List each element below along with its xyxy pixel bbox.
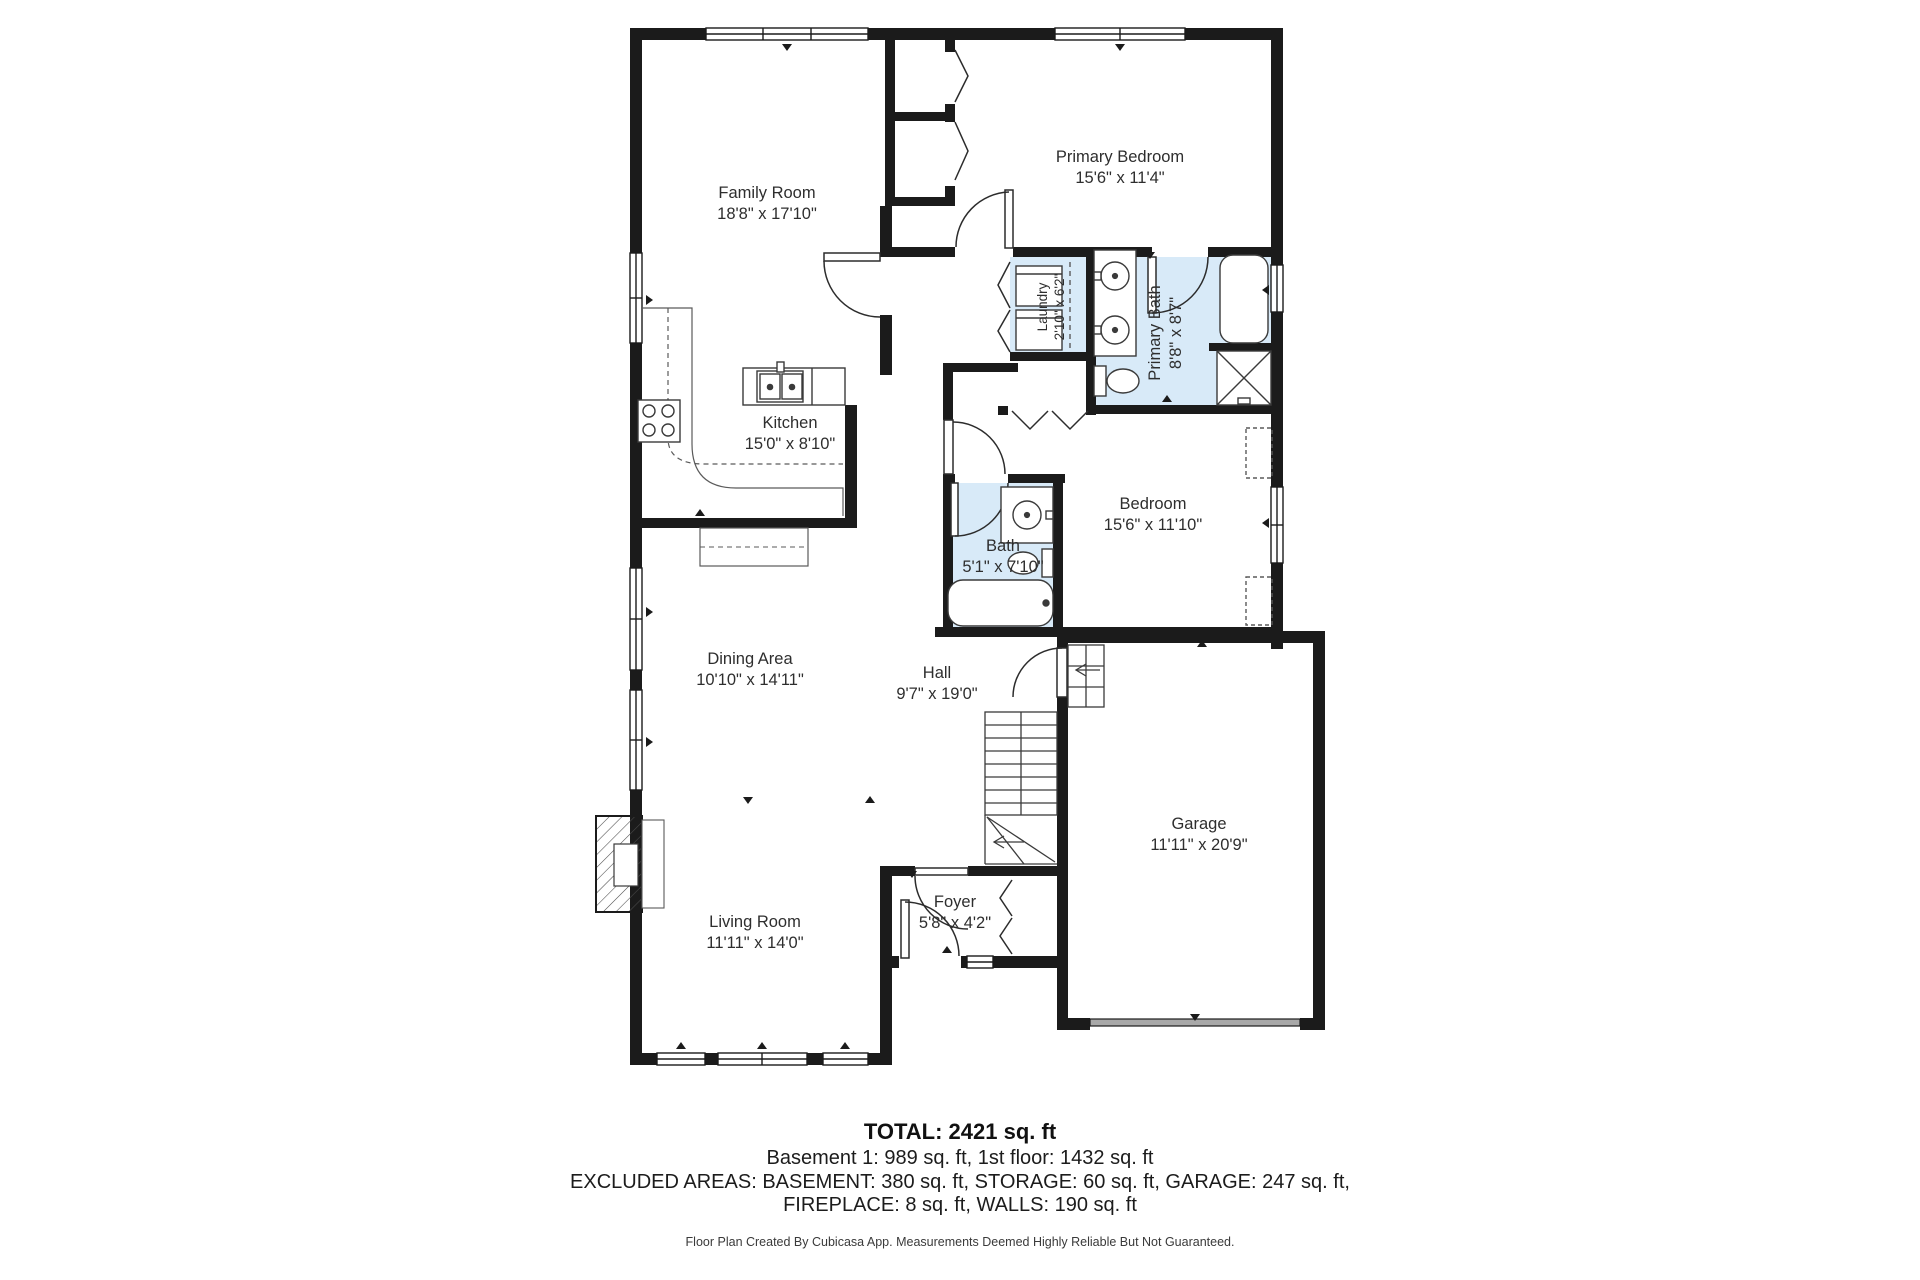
room-dims-living-room: 11'11" x 14'0" xyxy=(706,934,803,952)
wall-bedroom-bottom xyxy=(935,627,1283,637)
wall-bath-right xyxy=(1053,474,1063,637)
window-living-bottom-1 xyxy=(657,1053,705,1065)
room-dims-bedroom: 15'6" x 11'10" xyxy=(1104,516,1203,534)
door-stair-landing xyxy=(1013,648,1067,697)
wall-corridor-a xyxy=(943,363,1018,372)
primary-bath-toilet xyxy=(1094,366,1139,396)
room-label-dining-area: Dining Area xyxy=(707,650,793,668)
room-label-living-room: Living Room xyxy=(709,913,801,931)
wall-pbr-bottom-a xyxy=(885,247,955,257)
bifold-primary-closets xyxy=(955,50,968,180)
kitchen-island-sink xyxy=(743,362,845,405)
garage-steps xyxy=(1068,645,1104,707)
summary-block: TOTAL: 2421 sq. ft Basement 1: 989 sq. f… xyxy=(570,1119,1350,1249)
bifold-laundry xyxy=(998,262,1010,352)
room-label-garage: Garage xyxy=(1171,815,1226,833)
floor-plan-svg: Family Room 18'8" x 17'10" Primary Bedro… xyxy=(0,0,1920,1280)
room-dims-primary-bath: 8'8" x 8'7" xyxy=(1167,297,1185,369)
window-family-left xyxy=(630,253,642,343)
wall-garage-right xyxy=(1313,631,1325,1030)
window-dining-left-lower xyxy=(630,690,642,790)
room-label-laundry: Laundry xyxy=(1035,282,1050,331)
wall-closetstrip-stub-l xyxy=(998,406,1008,415)
bathtub xyxy=(948,580,1053,626)
kitchen-sideboard xyxy=(700,528,808,566)
room-label-primary-bedroom: Primary Bedroom xyxy=(1056,148,1184,166)
room-dims-family-room: 18'8" x 17'10" xyxy=(717,205,817,223)
wall-pbath-bottom xyxy=(1086,405,1283,414)
bath-vanity xyxy=(1001,487,1053,543)
wall-kitchen-bottom xyxy=(630,518,857,528)
door-family-hallway xyxy=(824,253,892,317)
summary-footer: Floor Plan Created By Cubicasa App. Meas… xyxy=(686,1235,1235,1249)
bifold-foyer-closet xyxy=(1000,880,1012,954)
window-living-bottom-2 xyxy=(718,1053,807,1065)
window-front-door-sidelite xyxy=(967,956,993,968)
wall-closet-bottom xyxy=(885,197,955,206)
bedroom-closet-2 xyxy=(1246,577,1272,625)
room-dims-foyer: 5'8" x 4'2" xyxy=(919,914,991,932)
wall-closet-right-a xyxy=(945,40,955,52)
room-label-bedroom: Bedroom xyxy=(1120,495,1187,513)
wall-closet-left xyxy=(885,40,895,206)
primary-shower xyxy=(1217,351,1271,405)
window-family-top xyxy=(706,28,868,40)
stove xyxy=(638,400,680,442)
primary-bathtub xyxy=(1220,255,1268,343)
summary-excluded-1: EXCLUDED AREAS: BASEMENT: 380 sq. ft, ST… xyxy=(570,1171,1350,1193)
window-primary-bedroom-top xyxy=(1055,28,1185,40)
room-label-hall: Hall xyxy=(923,664,951,682)
window-bedroom-right xyxy=(1271,487,1283,563)
wall-hallway-lower xyxy=(880,315,892,375)
room-dims-dining-area: 10'10" x 14'11" xyxy=(696,671,804,689)
wall-closet-divider xyxy=(885,112,955,121)
room-dims-hall: 9'7" x 19'0" xyxy=(896,685,977,703)
room-dims-laundry: 2'10" x 6'2" xyxy=(1052,274,1067,341)
wall-bath-top-a xyxy=(943,474,955,483)
wall-closet-right-c xyxy=(945,186,955,206)
room-label-family-room: Family Room xyxy=(718,184,815,202)
window-living-bottom-3 xyxy=(823,1053,868,1065)
wall-tub-shower-stub xyxy=(1209,343,1271,351)
door-hall-corridor xyxy=(944,420,1005,474)
room-dims-kitchen: 15'0" x 8'10" xyxy=(745,435,836,453)
wall-corridor-b xyxy=(943,372,953,420)
wall-garage-left-b xyxy=(1057,697,1068,1018)
bifold-bedroom-closets xyxy=(1012,411,1088,429)
window-dining-left-upper xyxy=(630,568,642,670)
bedroom-closet-1 xyxy=(1246,428,1272,478)
fireplace xyxy=(596,816,664,912)
room-dims-garage: 11'11" x 20'9" xyxy=(1150,836,1247,854)
room-label-foyer: Foyer xyxy=(934,893,977,911)
room-label-bath: Bath xyxy=(986,537,1020,555)
wall-kitchen-right xyxy=(845,405,857,528)
room-dims-primary-bedroom: 15'6" x 11'4" xyxy=(1075,169,1164,187)
door-primary-bedroom xyxy=(955,190,1013,257)
wall-laundry-bottom xyxy=(1010,352,1088,361)
summary-excluded-2: FIREPLACE: 8 sq. ft, WALLS: 190 sq. ft xyxy=(783,1194,1137,1216)
primary-bath-vanity xyxy=(1094,250,1136,356)
wall-closet-right-b xyxy=(945,104,955,122)
floor-plan-page: Family Room 18'8" x 17'10" Primary Bedro… xyxy=(0,0,1920,1280)
summary-total: TOTAL: 2421 sq. ft xyxy=(864,1119,1057,1144)
room-dims-bath: 5'1" x 7'10" xyxy=(962,558,1043,576)
window-primary-bath-right xyxy=(1271,265,1283,312)
room-label-kitchen: Kitchen xyxy=(762,414,817,432)
summary-floors: Basement 1: 989 sq. ft, 1st floor: 1432 … xyxy=(767,1147,1154,1169)
room-label-primary-bath: Primary Bath xyxy=(1146,285,1164,380)
staircase xyxy=(985,645,1104,864)
